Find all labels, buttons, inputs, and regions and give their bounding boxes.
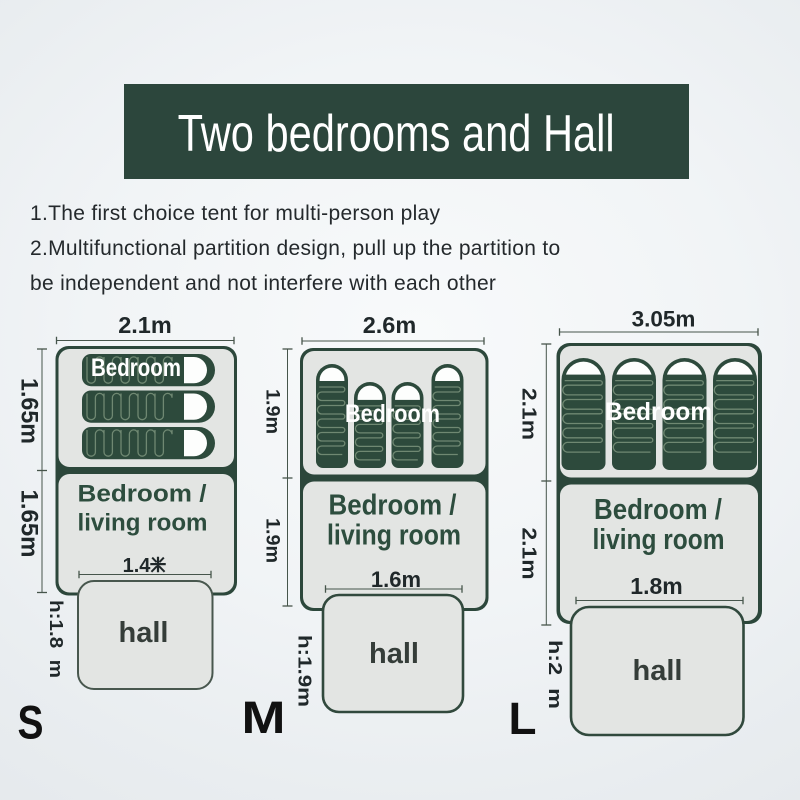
svg-text:L: L: [509, 693, 537, 744]
svg-text:Bedroom /: Bedroom /: [78, 481, 207, 508]
svg-text:living room: living room: [327, 520, 461, 552]
svg-text:Bedroom: Bedroom: [605, 398, 712, 426]
svg-text:2.1m: 2.1m: [518, 388, 540, 440]
svg-text:living room: living room: [78, 510, 208, 537]
svg-text:hall: hall: [633, 655, 683, 687]
svg-text:hall: hall: [119, 617, 169, 649]
svg-text:1.6m: 1.6m: [371, 567, 421, 592]
svg-text:1.65m: 1.65m: [16, 378, 43, 444]
svg-text:Bedroom /: Bedroom /: [594, 494, 722, 526]
svg-text:1.9m: 1.9m: [262, 389, 284, 434]
svg-text:1.8m: 1.8m: [630, 573, 682, 599]
svg-text:Bedroom /: Bedroom /: [329, 490, 457, 522]
svg-text:living room: living room: [593, 524, 725, 556]
svg-text:2.1m: 2.1m: [118, 312, 172, 338]
svg-text:Bedroom: Bedroom: [91, 354, 181, 382]
svg-text:1.4: 1.4: [123, 555, 152, 577]
svg-text:2.1m: 2.1m: [518, 528, 540, 580]
svg-text:2.6m: 2.6m: [363, 312, 417, 338]
svg-text:3.05m: 3.05m: [632, 307, 696, 332]
svg-text:1.9m: 1.9m: [262, 518, 284, 563]
svg-text:h:2 m: h:2 m: [545, 640, 565, 709]
svg-text:M: M: [242, 692, 286, 743]
svg-text:1.65m: 1.65m: [16, 490, 43, 558]
svg-text:h:1.8 m: h:1.8 m: [46, 600, 66, 678]
svg-text:S: S: [18, 696, 44, 749]
svg-text:hall: hall: [369, 638, 419, 670]
svg-text:Bedroom: Bedroom: [345, 400, 440, 428]
svg-text:h:1.9m: h:1.9m: [295, 635, 316, 707]
